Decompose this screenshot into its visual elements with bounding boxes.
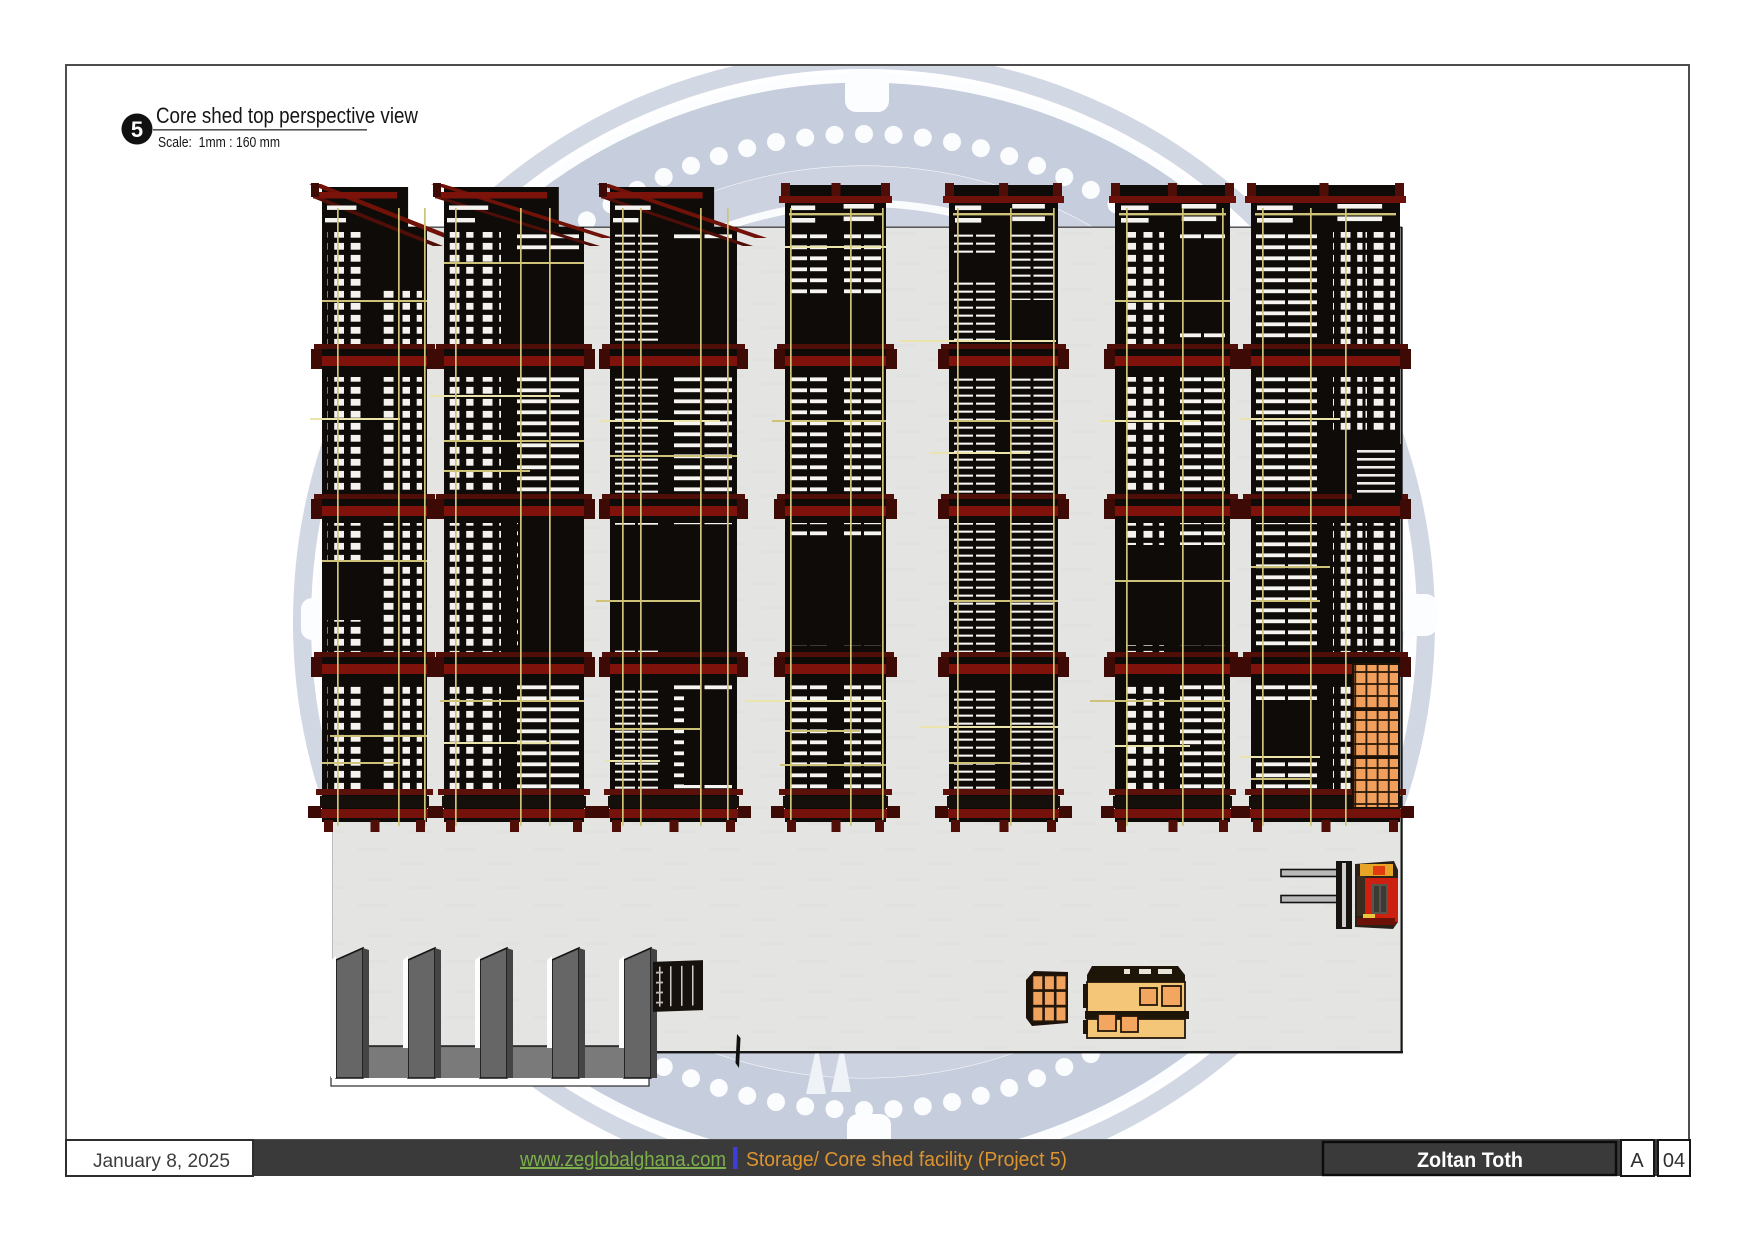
svg-text:Storage/ Core shed facility (P: Storage/ Core shed facility (Project 5) [746,1149,1067,1171]
svg-text:A: A [1630,1150,1644,1172]
svg-text:5: 5 [131,117,143,142]
svg-text:Scale: 1mm : 160 mm: Scale: 1mm : 160 mm [158,135,280,151]
svg-text:www.zeglobalghana.com: www.zeglobalghana.com [519,1149,726,1171]
svg-text:January 8, 2025: January 8, 2025 [93,1150,230,1172]
svg-text:Core shed top perspective view: Core shed top perspective view [156,103,419,128]
svg-text:04: 04 [1663,1150,1685,1172]
svg-text:Zoltan Toth: Zoltan Toth [1417,1149,1523,1172]
